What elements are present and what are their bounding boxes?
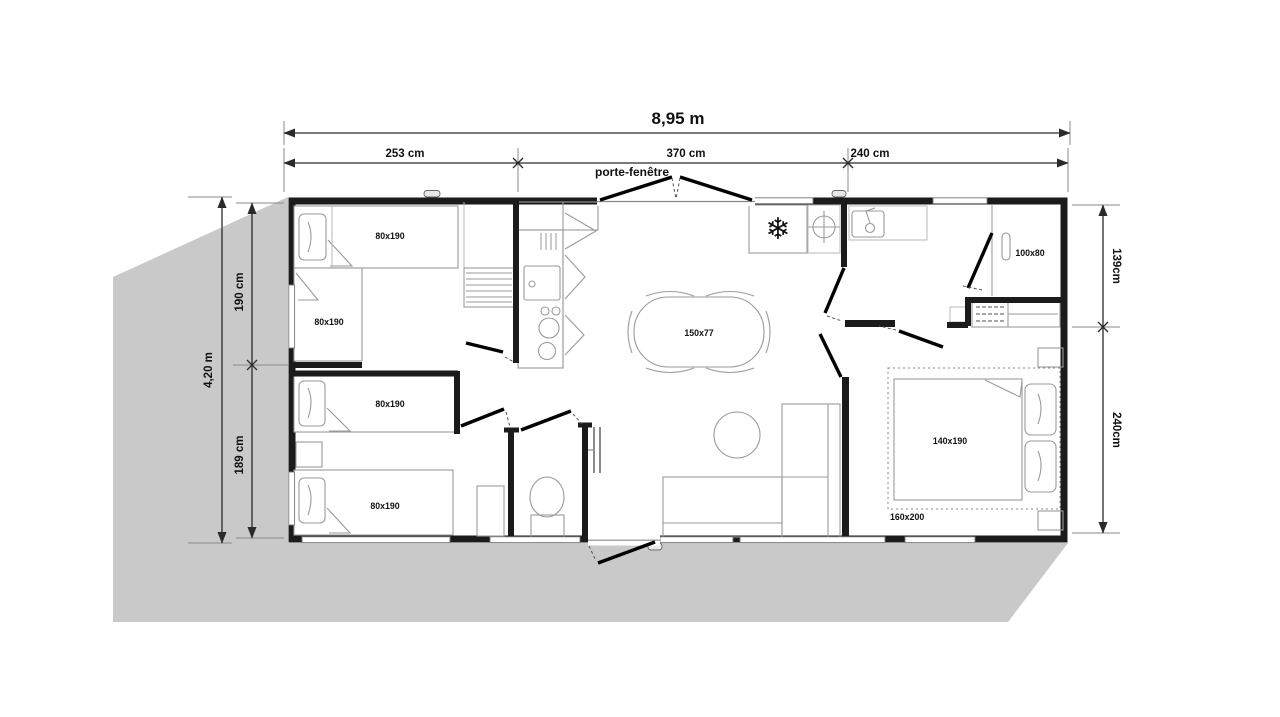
segment-width-label: 240 cm: [850, 148, 889, 160]
pillow: [299, 214, 326, 260]
dimension-top-total: 8,95 m: [284, 109, 1070, 145]
segment-depth-label: 240cm: [1110, 412, 1122, 448]
bed-size-label: 80x190: [370, 501, 399, 511]
segment-width-label: 370 cm: [666, 148, 705, 160]
total-depth-label: 4,20 m: [203, 352, 215, 388]
bed-footprint-label: 160x200: [890, 512, 924, 522]
shower-size-label: 100x80: [1015, 248, 1044, 258]
window: [289, 472, 295, 525]
window: [933, 198, 987, 204]
floor-plan-page: 80x190 80x190 80x190 80x190: [0, 0, 1280, 717]
window: [740, 537, 885, 543]
dimension-top-segments: 253 cm 370 cm 240 cm porte-fenêtre: [284, 148, 1068, 192]
segment-depth-label: 189 cm: [234, 435, 246, 474]
window: [660, 537, 733, 543]
floor-plan-canvas: 80x190 80x190 80x190 80x190: [0, 0, 1280, 717]
segment-width-label: 253 cm: [385, 148, 424, 160]
window: [302, 537, 450, 543]
bed-size-label: 80x190: [375, 399, 404, 409]
single-bed-2: [294, 268, 362, 361]
roof-vent-icon: [832, 191, 846, 198]
pillow: [299, 478, 325, 523]
bed-size-label: 80x190: [375, 231, 404, 241]
double-bed-size-label: 140x190: [933, 436, 967, 446]
table-size-label: 150x77: [684, 328, 713, 338]
patio-door: [597, 177, 755, 206]
pillow: [299, 381, 325, 426]
segment-depth-label: 190 cm: [234, 272, 246, 311]
snowflake-icon: ❄: [765, 213, 790, 246]
window: [905, 537, 975, 543]
patio-door-label: porte-fenêtre: [595, 165, 669, 179]
dimension-right-segments: 139cm 240cm: [1072, 205, 1122, 533]
window: [289, 285, 295, 348]
bed-size-label: 80x190: [314, 317, 343, 327]
roof-vent-icon: [424, 191, 440, 198]
partition-stub: [845, 320, 895, 327]
segment-depth-label: 139cm: [1110, 248, 1122, 284]
total-width-label: 8,95 m: [652, 109, 705, 128]
window: [490, 537, 580, 543]
window: [748, 198, 813, 204]
